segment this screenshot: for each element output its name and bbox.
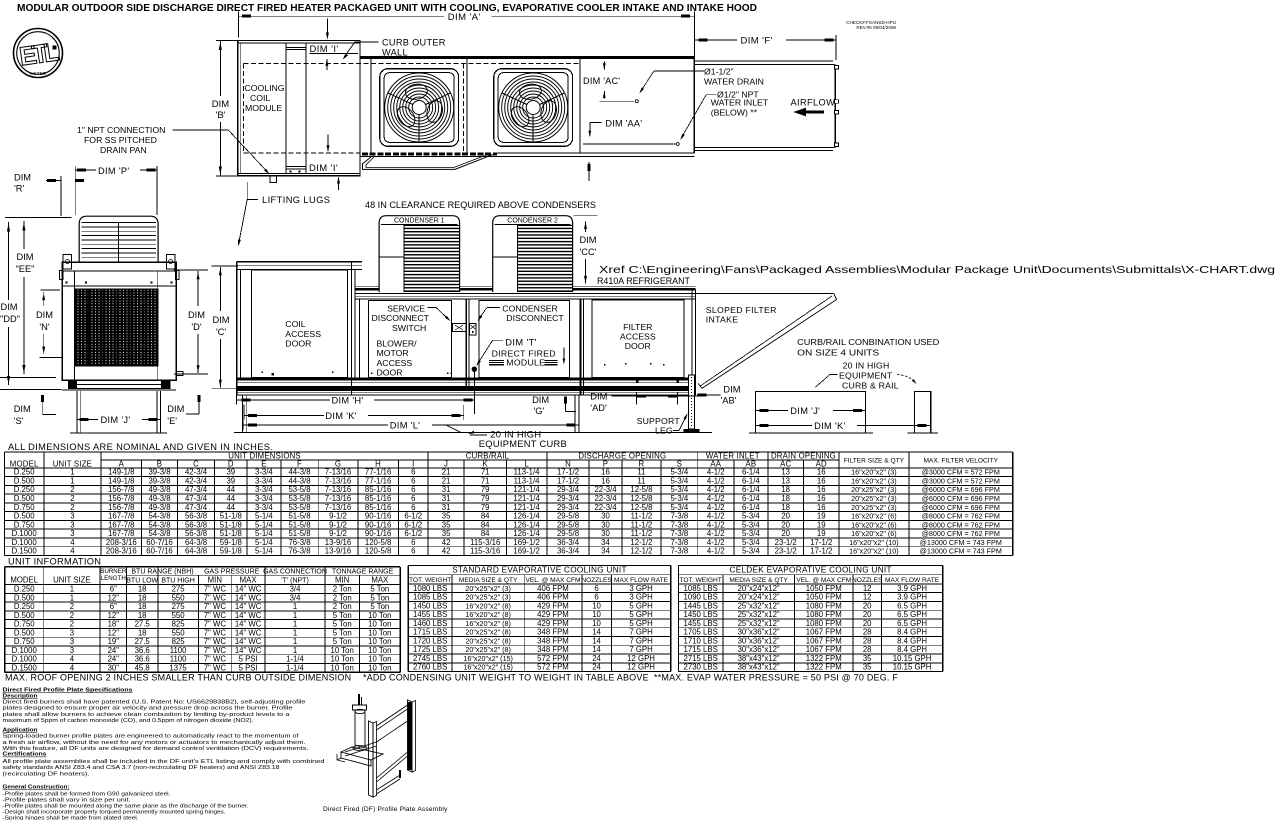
- svg-text:825: 825: [172, 637, 186, 646]
- svg-text:@3000 CFM = 572 FPM: @3000 CFM = 572 FPM: [922, 476, 1000, 485]
- svg-text:16: 16: [817, 468, 826, 477]
- svg-text:34: 34: [601, 547, 610, 556]
- svg-text:1710 LBS: 1710 LBS: [684, 636, 718, 645]
- svg-text:429 FPM: 429 FPM: [537, 601, 569, 610]
- svg-text:Description: Description: [3, 693, 38, 699]
- svg-text:D.750: D.750: [14, 503, 35, 512]
- svg-text:CURB OUTER: CURB OUTER: [382, 38, 446, 48]
- svg-text:14" WC: 14" WC: [235, 593, 262, 602]
- svg-text:29-3/4: 29-3/4: [557, 485, 580, 494]
- svg-text:13-9/16: 13-9/16: [325, 547, 351, 556]
- svg-text:406 FPM: 406 FPM: [537, 584, 569, 593]
- svg-text:42-3/4: 42-3/4: [185, 468, 208, 477]
- svg-text:47-3/4: 47-3/4: [185, 503, 208, 512]
- svg-text:DIM: DIM: [723, 385, 740, 395]
- svg-text:10 Ton: 10 Ton: [368, 655, 391, 664]
- svg-text:DIM 'I': DIM 'I': [309, 163, 338, 174]
- svg-text:COOLING: COOLING: [245, 83, 285, 93]
- svg-text:59-1/8: 59-1/8: [220, 547, 242, 556]
- svg-text:16: 16: [817, 503, 826, 512]
- svg-text:51-5/8: 51-5/8: [288, 512, 310, 521]
- svg-text:85-1/16: 85-1/16: [365, 485, 391, 494]
- svg-text:3-3/4: 3-3/4: [255, 494, 273, 503]
- svg-text:12-5/8: 12-5/8: [630, 494, 652, 503]
- svg-text:25"x32"x12": 25"x32"x12": [738, 619, 780, 628]
- svg-text:MAX. ROOF OPENING 2 INCHES SMA: MAX. ROOF OPENING 2 INCHES SMALLER THAN …: [5, 673, 351, 683]
- svg-text:56-3/8: 56-3/8: [185, 520, 207, 529]
- svg-text:156-7/8: 156-7/8: [108, 503, 134, 512]
- svg-text:2: 2: [70, 485, 74, 494]
- svg-text:CELDEK EVAPORATIVE COOLING UNI: CELDEK EVAPORATIVE COOLING UNIT: [729, 566, 891, 575]
- svg-text:3: 3: [70, 529, 74, 538]
- svg-text:7-3/8: 7-3/8: [670, 520, 688, 529]
- svg-text:With this feature, all DF unit: With this feature, all DF units are desi…: [3, 746, 309, 752]
- svg-text:DISCONNECT: DISCONNECT: [506, 313, 564, 323]
- svg-text:5 Ton: 5 Ton: [333, 628, 352, 637]
- svg-text:COIL: COIL: [285, 319, 305, 329]
- svg-text:71: 71: [481, 476, 490, 485]
- svg-text:51-1/8: 51-1/8: [220, 520, 242, 529]
- svg-text:12-1/2: 12-1/2: [630, 547, 652, 556]
- svg-text:DIM: DIM: [36, 310, 53, 320]
- svg-text:19": 19": [108, 637, 120, 646]
- svg-text:47-3/4: 47-3/4: [185, 494, 208, 503]
- svg-text:27.5: 27.5: [135, 620, 151, 629]
- svg-text:14: 14: [592, 628, 601, 637]
- svg-text:AIRFLOW: AIRFLOW: [791, 98, 836, 108]
- svg-text:20: 20: [863, 610, 872, 619]
- svg-text:DIM 'AC': DIM 'AC': [583, 76, 620, 86]
- svg-text:28: 28: [863, 628, 872, 637]
- svg-text:24": 24": [108, 646, 120, 655]
- svg-text:'D': 'D': [191, 322, 201, 332]
- svg-text:EQUIPMENT: EQUIPMENT: [839, 370, 893, 380]
- svg-text:113-1/4: 113-1/4: [514, 468, 541, 477]
- svg-text:D.500: D.500: [14, 512, 35, 521]
- svg-text:30": 30": [108, 663, 120, 672]
- svg-text:'S': 'S': [14, 416, 24, 426]
- svg-text:'G': 'G': [534, 406, 545, 416]
- svg-text:7-13/16: 7-13/16: [325, 468, 351, 477]
- svg-text:1715 LBS: 1715 LBS: [684, 645, 718, 654]
- svg-text:28: 28: [863, 645, 872, 654]
- svg-text:DIM 'F': DIM 'F': [741, 36, 773, 47]
- svg-text:30: 30: [601, 512, 610, 521]
- svg-text:safety standards ANSI Z83.4 an: safety standards ANSI Z83.4 and CSA 3.7 …: [3, 765, 280, 771]
- svg-text:Direct Fired (DF) Profile Plat: Direct Fired (DF) Profile Plate Assembly: [323, 806, 448, 813]
- svg-text:MIN: MIN: [335, 576, 349, 585]
- svg-text:GAS PRESSURE: GAS PRESSURE: [204, 569, 260, 576]
- svg-text:COIL: COIL: [250, 93, 270, 103]
- svg-text:5 GPH: 5 GPH: [629, 619, 652, 628]
- svg-text:1460 LBS: 1460 LBS: [413, 619, 447, 628]
- svg-text:1455 LBS: 1455 LBS: [684, 619, 718, 628]
- svg-text:1067 FPM: 1067 FPM: [806, 636, 842, 645]
- svg-text:1080 FPM: 1080 FPM: [806, 601, 842, 610]
- svg-text:MAX. FILTER VELOCITY: MAX. FILTER VELOCITY: [923, 458, 998, 465]
- svg-text:36-3/4: 36-3/4: [557, 547, 580, 556]
- svg-text:7-13/16: 7-13/16: [325, 503, 351, 512]
- svg-text:16: 16: [817, 485, 826, 494]
- svg-text:"DD": "DD": [0, 314, 20, 324]
- svg-text:406 FPM: 406 FPM: [537, 593, 569, 602]
- svg-text:60-7/16: 60-7/16: [146, 547, 172, 556]
- svg-text:42: 42: [442, 547, 451, 556]
- svg-text:18": 18": [108, 620, 120, 629]
- svg-text:1322 FPM: 1322 FPM: [806, 663, 842, 672]
- svg-text:4-1/2: 4-1/2: [707, 503, 725, 512]
- svg-text:DIM: DIM: [167, 404, 184, 414]
- svg-text:64-3/8: 64-3/8: [185, 547, 207, 556]
- svg-text:CURB/RAIL CONBINATION USED: CURB/RAIL CONBINATION USED: [797, 337, 939, 347]
- svg-text:10 Ton: 10 Ton: [331, 646, 354, 655]
- svg-text:2760 LBS: 2760 LBS: [413, 663, 447, 672]
- svg-text:1080 FPM: 1080 FPM: [806, 610, 842, 619]
- svg-text:7-13/16: 7-13/16: [325, 494, 351, 503]
- svg-text:348 FPM: 348 FPM: [537, 645, 569, 654]
- svg-text:5-3/4: 5-3/4: [742, 512, 760, 521]
- svg-text:11: 11: [637, 468, 645, 477]
- svg-text:550: 550: [172, 611, 186, 620]
- svg-text:'R': 'R': [14, 184, 24, 194]
- svg-text:22-3/4: 22-3/4: [594, 485, 617, 494]
- svg-text:17-1/2: 17-1/2: [810, 547, 832, 556]
- svg-text:19: 19: [817, 529, 826, 538]
- svg-text:Xref C:\Engineering\Fans\Packa: Xref C:\Engineering\Fans\Packaged Assemb…: [599, 265, 1275, 276]
- svg-text:*ADD CONDENSING UNIT WEIGHT TO: *ADD CONDENSING UNIT WEIGHT TO WEIGHT IN…: [363, 673, 649, 683]
- svg-text:D.750: D.750: [14, 637, 35, 646]
- svg-text:34: 34: [601, 538, 610, 547]
- svg-text:12": 12": [108, 628, 120, 637]
- svg-text:12": 12": [108, 593, 120, 602]
- svg-text:DIM: DIM: [212, 99, 230, 110]
- svg-text:1: 1: [293, 611, 297, 620]
- svg-text:7-13/16: 7-13/16: [325, 476, 351, 485]
- svg-text:64-3/8: 64-3/8: [185, 538, 207, 547]
- svg-text:16"x20"x2" (6): 16"x20"x2" (6): [851, 512, 897, 521]
- svg-text:WATER DRAIN: WATER DRAIN: [704, 77, 764, 87]
- svg-text:1705 LBS: 1705 LBS: [684, 628, 718, 637]
- svg-text:D.500: D.500: [14, 476, 35, 485]
- svg-text:85-1/16: 85-1/16: [365, 503, 391, 512]
- svg-text:149-1/8: 149-1/8: [108, 468, 134, 477]
- svg-text:5 Ton: 5 Ton: [333, 620, 352, 629]
- svg-text:1: 1: [293, 620, 297, 629]
- svg-text:7" WC: 7" WC: [204, 585, 227, 594]
- svg-text:10 Ton: 10 Ton: [368, 637, 391, 646]
- svg-text:149-1/8: 149-1/8: [108, 476, 134, 485]
- svg-text:3/4: 3/4: [290, 585, 302, 594]
- svg-text:12: 12: [863, 593, 872, 602]
- svg-text:3-3/4: 3-3/4: [255, 468, 273, 477]
- svg-text:10.15 GPH: 10.15 GPH: [893, 654, 932, 663]
- svg-text:10 Ton: 10 Ton: [331, 663, 354, 672]
- svg-text:90-1/16: 90-1/16: [365, 512, 391, 521]
- svg-text:20"x25"x2" (3): 20"x25"x2" (3): [851, 503, 897, 512]
- svg-text:60-7/16: 60-7/16: [146, 538, 172, 547]
- svg-text:20: 20: [863, 619, 872, 628]
- svg-text:14" WC: 14" WC: [235, 637, 262, 646]
- svg-text:5-1/4: 5-1/4: [255, 520, 273, 529]
- svg-text:6-1/4: 6-1/4: [742, 476, 760, 485]
- svg-text:825: 825: [172, 620, 186, 629]
- svg-text:14: 14: [592, 645, 601, 654]
- svg-text:16"x20"x2" (6): 16"x20"x2" (6): [851, 520, 897, 529]
- svg-text:CONDENSER 2: CONDENSER 2: [507, 218, 558, 225]
- svg-text:1445 LBS: 1445 LBS: [684, 601, 718, 610]
- svg-text:2: 2: [70, 611, 74, 620]
- svg-text:12": 12": [108, 611, 120, 620]
- svg-text:D.750: D.750: [14, 620, 35, 629]
- svg-text:121-1/4: 121-1/4: [513, 494, 540, 503]
- svg-text:54-3/8: 54-3/8: [148, 512, 170, 521]
- svg-text:4: 4: [70, 655, 75, 664]
- svg-text:plates shall allow burners to: plates shall allow burners to achieve cl…: [3, 712, 290, 718]
- svg-text:5-3/4: 5-3/4: [742, 538, 760, 547]
- svg-text:20"x24"x12": 20"x24"x12": [738, 593, 780, 602]
- svg-text:MAX: MAX: [371, 576, 389, 585]
- svg-text:D.250: D.250: [14, 602, 35, 611]
- svg-text:Direct fired burners shall hav: Direct fired burners shall have patented…: [3, 700, 306, 706]
- svg-text:2715 LBS: 2715 LBS: [684, 654, 718, 663]
- svg-text:D.500: D.500: [14, 611, 35, 620]
- svg-text:D.750: D.750: [14, 520, 35, 529]
- svg-text:R410A REFRIGERANT: R410A REFRIGERANT: [597, 276, 690, 286]
- svg-text:36.6: 36.6: [135, 655, 150, 664]
- svg-text:572 FPM: 572 FPM: [537, 663, 569, 672]
- svg-text:TONNAGE RANGE: TONNAGE RANGE: [332, 569, 394, 576]
- svg-text:6: 6: [594, 593, 598, 602]
- svg-text:6: 6: [594, 584, 598, 593]
- svg-text:126-1/4: 126-1/4: [513, 529, 540, 538]
- svg-text:4-1/2: 4-1/2: [707, 547, 725, 556]
- svg-text:6: 6: [411, 494, 415, 503]
- svg-text:51-1/8: 51-1/8: [220, 529, 242, 538]
- svg-text:18: 18: [138, 585, 147, 594]
- svg-text:38"x43"x12": 38"x43"x12": [738, 663, 780, 672]
- svg-text:1375: 1375: [169, 663, 187, 672]
- svg-text:1450 LBS: 1450 LBS: [413, 601, 447, 610]
- svg-text:5-3/4: 5-3/4: [742, 520, 760, 529]
- svg-text:20"x25"x2" (3): 20"x25"x2" (3): [851, 485, 897, 494]
- svg-text:18: 18: [138, 628, 147, 637]
- svg-text:79: 79: [481, 494, 490, 503]
- svg-text:19: 19: [817, 520, 826, 529]
- svg-text:20"x25"x2" (3): 20"x25"x2" (3): [465, 584, 511, 593]
- svg-text:44: 44: [226, 503, 235, 512]
- svg-text:21: 21: [442, 468, 451, 477]
- svg-text:20 IN HIGH: 20 IN HIGH: [843, 361, 890, 371]
- svg-text:7" WC: 7" WC: [204, 593, 227, 602]
- svg-text:REV.#5 09/04/2008: REV.#5 09/04/2008: [856, 25, 896, 30]
- svg-text:9-1/2: 9-1/2: [329, 529, 347, 538]
- svg-text:208-3/16: 208-3/16: [106, 538, 137, 547]
- svg-text:54-3/8: 54-3/8: [148, 520, 170, 529]
- svg-text:115-3/16: 115-3/16: [470, 547, 500, 556]
- svg-text:1455 LBS: 1455 LBS: [413, 610, 447, 619]
- svg-text:@6000 CFM = 696 FPM: @6000 CFM = 696 FPM: [922, 503, 1000, 512]
- svg-text:5 Ton: 5 Ton: [333, 637, 352, 646]
- svg-text:17-1/2: 17-1/2: [810, 538, 832, 547]
- svg-text:44: 44: [226, 485, 235, 494]
- svg-text:7" WC: 7" WC: [204, 628, 227, 637]
- svg-text:275: 275: [172, 585, 186, 594]
- svg-text:'AB': 'AB': [721, 396, 737, 406]
- svg-text:49-3/8: 49-3/8: [148, 485, 170, 494]
- svg-text:DIM: DIM: [579, 235, 596, 245]
- svg-text:42: 42: [442, 538, 451, 547]
- svg-text:5-3/4: 5-3/4: [742, 547, 760, 556]
- svg-text:DIM 'AA': DIM 'AA': [605, 119, 642, 129]
- svg-text:31: 31: [442, 503, 451, 512]
- svg-text:16"x20"x2" (10): 16"x20"x2" (10): [849, 547, 899, 556]
- svg-text:3.9 GPH: 3.9 GPH: [897, 593, 927, 602]
- svg-text:35: 35: [863, 654, 872, 663]
- svg-text:ACCESS: ACCESS: [377, 358, 413, 368]
- svg-text:DIM 'J': DIM 'J': [790, 406, 820, 416]
- svg-text:5-1/4: 5-1/4: [255, 538, 273, 547]
- svg-text:'CC': 'CC': [580, 247, 597, 257]
- svg-text:D.250: D.250: [14, 485, 35, 494]
- svg-text:3-3/4: 3-3/4: [255, 503, 273, 512]
- svg-text:5-1/4: 5-1/4: [255, 512, 273, 521]
- svg-text:16"x20"x2" (6): 16"x20"x2" (6): [851, 529, 897, 538]
- svg-text:25"x32"x12": 25"x32"x12": [738, 601, 780, 610]
- svg-text:DISCHARGE OPENING: DISCHARGE OPENING: [578, 451, 666, 460]
- svg-text:30"x36"x12": 30"x36"x12": [738, 628, 780, 637]
- svg-text:10: 10: [592, 619, 601, 628]
- svg-text:25"x32"x12": 25"x32"x12": [738, 610, 780, 619]
- svg-text:6": 6": [110, 585, 117, 594]
- svg-text:22-3/4: 22-3/4: [594, 503, 617, 512]
- svg-text:MOTOR: MOTOR: [377, 348, 409, 358]
- svg-text:29-5/8: 29-5/8: [557, 512, 579, 521]
- svg-text:2: 2: [70, 503, 74, 512]
- svg-text:24: 24: [592, 654, 601, 663]
- svg-text:16"x20"x2" (8): 16"x20"x2" (8): [465, 619, 511, 628]
- svg-text:7" WC: 7" WC: [204, 646, 227, 655]
- svg-text:DIM 'A': DIM 'A': [448, 12, 481, 23]
- svg-text:11-1/2: 11-1/2: [631, 520, 653, 529]
- svg-text:4-1/2: 4-1/2: [707, 494, 725, 503]
- svg-text:7" WC: 7" WC: [204, 663, 227, 672]
- svg-text:156-7/8: 156-7/8: [108, 485, 134, 494]
- svg-text:5 Ton: 5 Ton: [370, 593, 389, 602]
- svg-text:SERVICE: SERVICE: [387, 304, 425, 314]
- svg-text:348 FPM: 348 FPM: [537, 636, 569, 645]
- svg-text:13: 13: [781, 476, 790, 485]
- svg-text:5 GPH: 5 GPH: [629, 610, 652, 619]
- svg-text:-Spring hinges shall be made f: -Spring hinges shall be made from plated…: [3, 815, 139, 820]
- svg-text:20"x24"x12": 20"x24"x12": [738, 584, 780, 593]
- svg-text:1100: 1100: [170, 655, 187, 664]
- svg-text:1322 FPM: 1322 FPM: [806, 654, 842, 663]
- svg-text:84: 84: [481, 512, 490, 521]
- svg-text:10.15 GPH: 10.15 GPH: [893, 663, 932, 672]
- svg-text:1450 LBS: 1450 LBS: [684, 610, 718, 619]
- svg-text:DIM: DIM: [188, 310, 205, 320]
- svg-text:1067 FPM: 1067 FPM: [806, 628, 842, 637]
- svg-text:STANDARD EVAPORATIVE COOLING U: STANDARD EVAPORATIVE COOLING UNIT: [452, 566, 627, 575]
- svg-text:20"x25"x2" (3): 20"x25"x2" (3): [465, 593, 511, 602]
- svg-text:5-3/4: 5-3/4: [670, 476, 688, 485]
- svg-text:Certifications: Certifications: [3, 752, 47, 758]
- svg-text:4-1/2: 4-1/2: [707, 485, 725, 494]
- svg-text:7 GPH: 7 GPH: [629, 636, 652, 645]
- svg-text:14" WC: 14" WC: [235, 628, 262, 637]
- svg-text:a fresh air airflow, without t: a fresh air airflow, without the need fo…: [3, 740, 306, 746]
- svg-text:6: 6: [411, 503, 415, 512]
- svg-text:@6000 CFM = 696 FPM: @6000 CFM = 696 FPM: [922, 494, 1000, 503]
- svg-text:3 GPH: 3 GPH: [629, 593, 652, 602]
- svg-text:MODULAR OUTDOOR SIDE DISCHARGE: MODULAR OUTDOOR SIDE DISCHARGE DIRECT FI…: [17, 3, 757, 14]
- svg-text:12 GPH: 12 GPH: [627, 654, 655, 663]
- svg-text:29-5/8: 29-5/8: [557, 529, 579, 538]
- svg-text:10 Ton: 10 Ton: [331, 655, 354, 664]
- svg-text:6: 6: [411, 476, 415, 485]
- svg-text:156-7/8: 156-7/8: [108, 494, 134, 503]
- svg-text:1" NPT CONNECTION: 1" NPT CONNECTION: [77, 125, 165, 135]
- svg-text:35: 35: [442, 529, 451, 538]
- svg-text:DIM: DIM: [14, 173, 31, 183]
- svg-text:85-1/16: 85-1/16: [365, 494, 391, 503]
- svg-text:18: 18: [138, 593, 147, 602]
- svg-text:21: 21: [442, 476, 451, 485]
- svg-text:DIM 'T': DIM 'T': [505, 338, 537, 348]
- svg-text:126-1/4: 126-1/4: [513, 520, 540, 529]
- svg-text:51-5/8: 51-5/8: [288, 529, 310, 538]
- svg-text:12-5/8: 12-5/8: [630, 503, 652, 512]
- svg-text:DIM: DIM: [0, 302, 17, 312]
- svg-text:DIM 'J': DIM 'J': [101, 415, 131, 425]
- svg-text:DIM: DIM: [212, 315, 229, 325]
- svg-text:167-7/8: 167-7/8: [108, 512, 134, 521]
- svg-text:1720 LBS: 1720 LBS: [413, 636, 447, 645]
- svg-text:6-1/2: 6-1/2: [404, 512, 422, 521]
- svg-text:5 Ton: 5 Ton: [333, 611, 352, 620]
- svg-text:10 Ton: 10 Ton: [368, 620, 391, 629]
- svg-text:11-1/2: 11-1/2: [631, 529, 653, 538]
- svg-text:16"x20"x2" (3): 16"x20"x2" (3): [851, 468, 897, 477]
- svg-text:7" WC: 7" WC: [204, 602, 227, 611]
- svg-text:30: 30: [601, 529, 610, 538]
- svg-text:5-3/4: 5-3/4: [670, 503, 688, 512]
- svg-text:D.500: D.500: [14, 593, 35, 602]
- svg-text:36-3/4: 36-3/4: [557, 538, 580, 547]
- svg-text:31: 31: [442, 494, 451, 503]
- svg-text:3-3/4: 3-3/4: [255, 476, 273, 485]
- svg-text:1067 FPM: 1067 FPM: [806, 645, 842, 654]
- svg-text:30"x36"x12": 30"x36"x12": [738, 636, 780, 645]
- svg-text:1100: 1100: [170, 646, 187, 655]
- svg-text:20: 20: [781, 512, 790, 521]
- svg-text:8.4 GPH: 8.4 GPH: [897, 645, 927, 654]
- svg-text:3.9 GPH: 3.9 GPH: [897, 584, 927, 593]
- svg-text:BLOWER/: BLOWER/: [377, 339, 418, 349]
- svg-text:D.1500: D.1500: [12, 547, 38, 556]
- svg-text:20"x25"x2" (8): 20"x25"x2" (8): [465, 628, 511, 637]
- svg-text:D.250: D.250: [14, 468, 35, 477]
- svg-text:49-3/8: 49-3/8: [148, 503, 170, 512]
- svg-text:16: 16: [601, 468, 610, 477]
- svg-text:7" WC: 7" WC: [204, 620, 227, 629]
- svg-text:1: 1: [70, 468, 74, 477]
- svg-text:1-1/4: 1-1/4: [286, 655, 304, 664]
- svg-text:20"x25"x2" (3): 20"x25"x2" (3): [851, 494, 897, 503]
- svg-text:Ø1-1/2": Ø1-1/2": [704, 67, 734, 77]
- svg-text:1080 FPM: 1080 FPM: [806, 619, 842, 628]
- svg-text:3 GPH: 3 GPH: [629, 584, 652, 593]
